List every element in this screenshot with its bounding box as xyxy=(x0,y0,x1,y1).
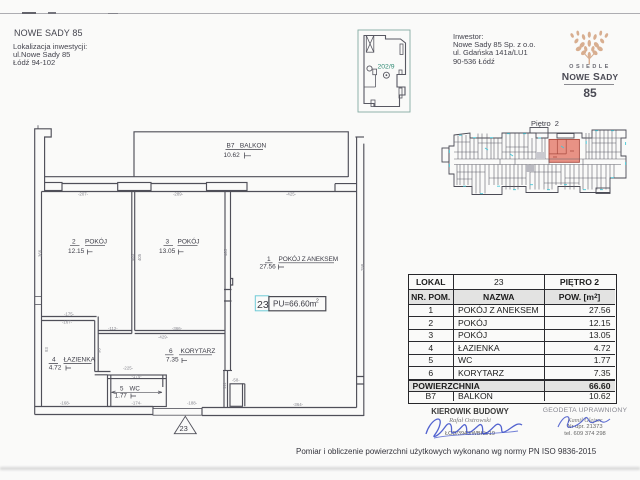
svg-text:27.56: 27.56 xyxy=(260,264,277,271)
svg-text:1.77: 1.77 xyxy=(115,393,128,400)
svg-text:5: 5 xyxy=(120,386,124,393)
svg-text:6: 6 xyxy=(169,348,173,355)
svg-text:POKÓJ Z ANEKSEM: POKÓJ Z ANEKSEM xyxy=(279,254,339,263)
svg-text:405: 405 xyxy=(223,248,228,256)
svg-text:10.62: 10.62 xyxy=(224,152,241,159)
svg-text:23: 23 xyxy=(180,424,188,433)
svg-text:12.15: 12.15 xyxy=(68,248,85,255)
svg-text:-175-: -175- xyxy=(64,312,75,317)
svg-text:-174-: -174- xyxy=(132,374,143,379)
svg-text:1: 1 xyxy=(267,256,271,263)
svg-text:405: 405 xyxy=(130,253,135,261)
svg-text:-366-: -366- xyxy=(172,326,183,331)
svg-text:405: 405 xyxy=(137,253,142,261)
svg-text:PU=66.60m: PU=66.60m xyxy=(273,300,317,309)
svg-text:-225-: -225- xyxy=(123,366,134,371)
svg-text:298: 298 xyxy=(360,263,365,271)
svg-text:23: 23 xyxy=(257,299,269,311)
svg-text:-174-: -174- xyxy=(132,401,143,406)
svg-text:ŁAZIENKA: ŁAZIENKA xyxy=(64,357,96,364)
svg-text:B7 BALKON: B7 BALKON xyxy=(227,143,267,150)
svg-text:13.05: 13.05 xyxy=(159,248,176,255)
svg-text:POKÓJ: POKÓJ xyxy=(85,237,107,246)
svg-text:-429-: -429- xyxy=(158,335,169,340)
svg-text:-289-: -289- xyxy=(173,192,184,197)
svg-text:-112-: -112- xyxy=(108,326,118,331)
svg-text:KORYTARZ: KORYTARZ xyxy=(181,348,216,355)
svg-text:93: 93 xyxy=(44,347,49,352)
svg-text:-207-: -207- xyxy=(78,192,89,197)
svg-text:-168-: -168- xyxy=(60,401,71,406)
svg-text:-364-: -364- xyxy=(293,402,304,407)
svg-text:-425-: -425- xyxy=(286,192,297,197)
svg-text:111: 111 xyxy=(222,382,227,389)
svg-text:-167-: -167- xyxy=(62,320,73,325)
svg-text:POKÓJ: POKÓJ xyxy=(178,237,200,246)
svg-text:WC: WC xyxy=(130,386,141,393)
svg-text:4.72: 4.72 xyxy=(49,365,62,372)
svg-text:98: 98 xyxy=(97,348,102,353)
svg-text:2: 2 xyxy=(72,239,76,246)
svg-text:366: 366 xyxy=(38,249,43,257)
svg-text:-58-: -58- xyxy=(232,378,240,383)
svg-text:7.35: 7.35 xyxy=(166,357,179,364)
svg-text:2: 2 xyxy=(316,299,319,305)
svg-text:4: 4 xyxy=(52,357,56,364)
svg-text:3: 3 xyxy=(166,239,170,246)
svg-text:-188-: -188- xyxy=(187,401,198,406)
